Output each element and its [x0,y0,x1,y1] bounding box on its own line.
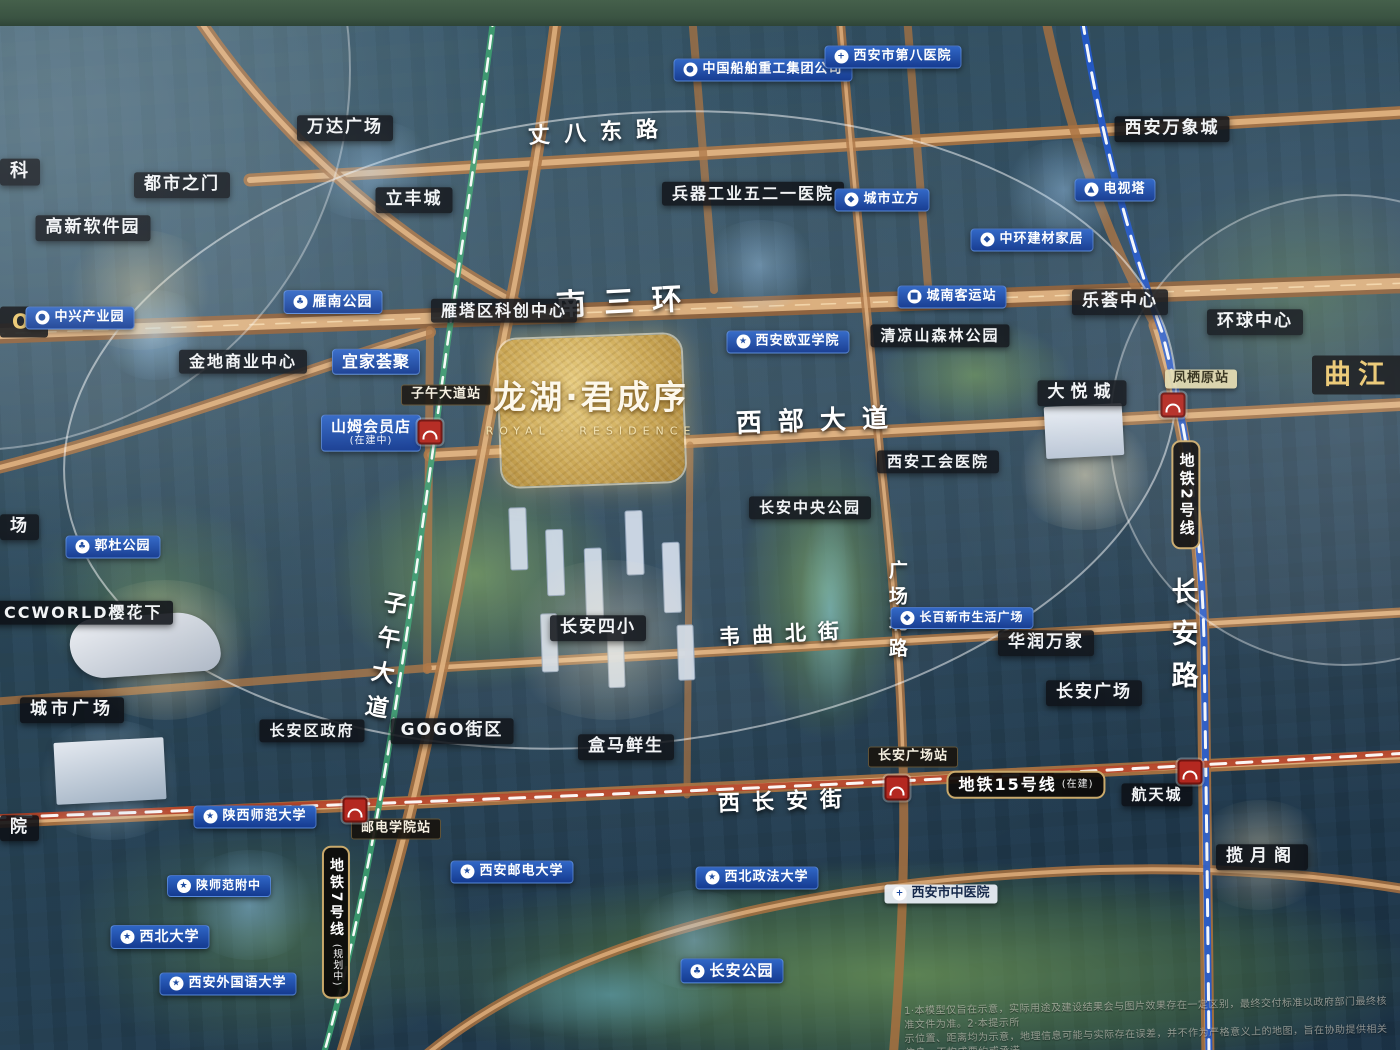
metro-station-icon [343,798,368,823]
map-label: 院 [0,815,39,841]
metro-station-icon [885,776,910,801]
map-label-text: 邮电学院站 [361,822,431,837]
map-label-text: 凤栖原站 [1173,372,1229,387]
photo-top-edge [0,0,1400,26]
metro-station-icon [1178,760,1203,785]
map-label-text: 中国船舶重工集团公司 [702,63,842,78]
map-label-text: 华润万家 [1008,633,1084,653]
shop-icon: ◆ [844,193,858,207]
map-label-text: GOGO街区 [401,721,504,741]
school-icon: ★ [705,871,719,885]
map-label-text: 立丰城 [386,190,443,210]
map-label: ◆长百新市生活广场 [890,607,1033,629]
map-label: ▲电视塔 [1074,179,1155,202]
map-label-text: 地铁15号线 [958,776,1056,794]
factory-icon: ● [683,63,697,77]
map-label-text: 西安市第八医院 [853,50,951,65]
map-label: 环球中心 [1207,309,1303,335]
map-label: 高新软件园 [36,215,151,241]
map-label-text: 郭杜公园 [94,540,150,555]
map-label-text: 子午大道站 [411,388,481,403]
map-label-text: 金地商业中心 [189,353,297,371]
metro-station-icon [418,420,443,445]
map-label-text: 长安四小 [560,618,636,638]
map-label-text: 西北大学 [140,929,200,945]
map-label-text: 中兴产业园 [54,311,124,326]
map-label-text: 西长安街 [718,787,855,817]
map-label-text: 长百新市生活广场 [919,611,1023,625]
map-label: 子午大道站 [401,385,491,406]
map-label-text: 宜家荟聚 [342,353,410,371]
map-label: ★陕师范附中 [167,875,271,897]
park-icon: ♣ [75,540,89,554]
shop-icon: ◆ [900,611,914,625]
map-label: ★西安欧亚学院 [726,331,849,354]
map-label-text: 城市立方 [863,193,919,208]
park-icon: ♣ [294,295,308,309]
map-label: 万达广场 [297,115,393,141]
map-label-text: 雁南公园 [313,294,373,310]
shop-icon: ◆ [980,233,994,247]
map-label-subtext: (在建中) [350,436,393,448]
map-label: 揽月阁 [1216,844,1308,870]
map-label: 长安广场站 [868,747,958,768]
sales-map-board: 龙湖·君成序 ROYAL · RESIDENCE 科万达广场丈八东路●中国船舶重… [0,0,1400,1050]
school-icon: ★ [121,930,135,944]
map-label-subtext: (在建) [1062,779,1094,791]
map-label: ◆城市立方 [834,189,929,212]
map-label-text: 盒马鲜生 [588,737,664,757]
map-label-text: 城市广场 [30,700,114,720]
hospital-icon: + [892,887,906,901]
map-label: ◆中环建材家居 [970,229,1093,252]
map-label-text: 科 [10,162,30,183]
map-label: 金地商业中心 [179,350,307,374]
map-label: 清凉山森林公园 [870,324,1009,347]
map-label: 长安区政府 [259,719,364,742]
school-icon: ★ [460,865,474,879]
map-label: 雁塔区科创中心 [431,299,577,323]
map-label-text: 西安邮电大学 [479,865,563,880]
map-label: ★西北大学 [111,925,210,949]
map-label: 宜家荟聚 [332,349,420,375]
map-label-text: 陕师范附中 [196,879,261,893]
map-label-text: 长安路 [1166,577,1197,703]
map-label-text: 大悦城 [1048,383,1117,403]
map-label-text: 乐荟中心 [1082,292,1158,312]
map-label-text: 城南客运站 [926,290,996,305]
map-label-text: 西安欧亚学院 [755,335,839,350]
disclaimer-text: 1·本模型仅旨在示意，实际用途及建设结果会与图片效果存在一定区别，最终交付标准以… [904,995,1394,1050]
map-label: 乐荟中心 [1072,289,1168,315]
map-label-text: 地铁2号线 [1177,452,1194,537]
map-label-text: 高新软件园 [46,218,141,238]
map-label-text: 都市之门 [144,175,220,195]
map-label-text: 航天城 [1131,786,1182,803]
school-icon: ★ [177,879,191,893]
map-label-text: 西安市中医院 [911,887,989,902]
map-label: 城市广场 [20,697,124,723]
map-label-text: 兵器工业五二一医院 [672,185,834,203]
map-label: 西安工会医院 [877,450,999,473]
map-label: 曲江 [1312,355,1400,394]
project-name: 龙湖·君成序 [486,371,697,419]
hospital-icon: + [834,50,848,64]
map-label: ■城南客运站 [897,286,1006,309]
map-label-text: CCWORLD樱花下 [4,604,163,622]
map-label: ●中兴产业园 [25,307,134,330]
road-label-changan-rd: 长安路 [1166,577,1197,703]
metro-line-7-label: 地铁7号线(规划中) [322,846,350,999]
map-label-text: 西安外国语大学 [188,977,286,992]
map-label-text: 地铁7号线 [328,858,344,939]
map-label: 凤栖原站 [1165,370,1237,389]
project-subtitle: ROYAL · RESIDENCE [486,425,697,438]
map-label: CCWORLD樱花下 [0,601,173,625]
map-label: 长安中央公园 [749,496,871,519]
map-label: 长安广场 [1046,680,1142,706]
map-label-text: 中环建材家居 [999,233,1083,248]
map-label: GOGO街区 [391,718,514,744]
road-label-west-avenue: 西部大道 [736,404,905,440]
bus-icon: ■ [907,290,921,304]
map-label-text: 场 [10,517,29,537]
map-label: ♣长安公园 [680,958,783,983]
project-title-block: 龙湖·君成序 ROYAL · RESIDENCE [486,371,697,438]
map-label-text: 长安广场 [1056,683,1132,703]
map-label: +西安市中医院 [884,885,997,904]
map-label-text: 西安万象城 [1125,119,1220,139]
map-label: +西安市第八医院 [824,46,961,69]
map-label-text: 环球中心 [1217,312,1293,332]
map-label: ★西安外国语大学 [159,973,296,996]
map-label: 西安万象城 [1115,116,1230,142]
map-label-text: 陕西师范大学 [222,810,306,825]
map-label-text: 清凉山森林公园 [880,327,999,344]
map-label-text: 西部大道 [736,404,905,440]
map-label: 山姆会员店(在建中) [321,415,421,452]
map-label: ★陕西师范大学 [193,806,316,829]
map-label-text: 长安中央公园 [759,499,861,516]
map-label-text: 西北政法大学 [724,871,808,886]
school-icon: ★ [203,810,217,824]
map-label-text: 长安区政府 [269,722,354,739]
map-label-subtext: (规划中) [330,943,342,986]
map-label-text: 长安广场站 [878,750,948,765]
map-label: 场 [0,514,39,540]
map-label-text: 院 [10,818,29,838]
map-label-text: 电视塔 [1103,183,1145,198]
map-label-text: 雁塔区科创中心 [441,302,567,320]
glare-arc-right [1110,195,1400,665]
metro-line-2-label: 地铁2号线 [1171,440,1200,549]
map-label: ★西安邮电大学 [450,861,573,884]
map-label: 航天城 [1121,783,1192,806]
map-label: ♣郭杜公园 [65,536,160,559]
map-label: 立丰城 [376,187,453,213]
map-label-text: 曲江 [1324,359,1392,390]
metro-station-icon [1161,393,1186,418]
map-label-text: 长安公园 [709,962,773,979]
map-label: 长安四小 [550,615,646,641]
map-label-text: 揽月阁 [1226,847,1298,867]
map-label-text: 西安工会医院 [887,453,989,470]
map-label-text: 万达广场 [307,118,383,138]
park-icon: ♣ [690,964,704,978]
map-label: ★西北政法大学 [695,867,818,890]
map-label: 兵器工业五二一医院 [662,182,844,206]
map-label: 盒马鲜生 [578,734,674,760]
tower-icon: ▲ [1084,183,1098,197]
map-label: 华润万家 [998,630,1094,656]
building-icon: ● [35,311,49,325]
metro-line-15-label: 地铁15号线(在建) [946,771,1105,799]
map-label: 科 [0,159,40,186]
map-label: 都市之门 [134,172,230,198]
road-label-west-changan-st: 西长安街 [718,787,855,817]
map-label-text: 山姆会员店 [331,419,411,436]
map-label: ♣雁南公园 [284,290,383,314]
map-label: 大悦城 [1038,380,1127,406]
school-icon: ★ [169,977,183,991]
school-icon: ★ [736,335,750,349]
